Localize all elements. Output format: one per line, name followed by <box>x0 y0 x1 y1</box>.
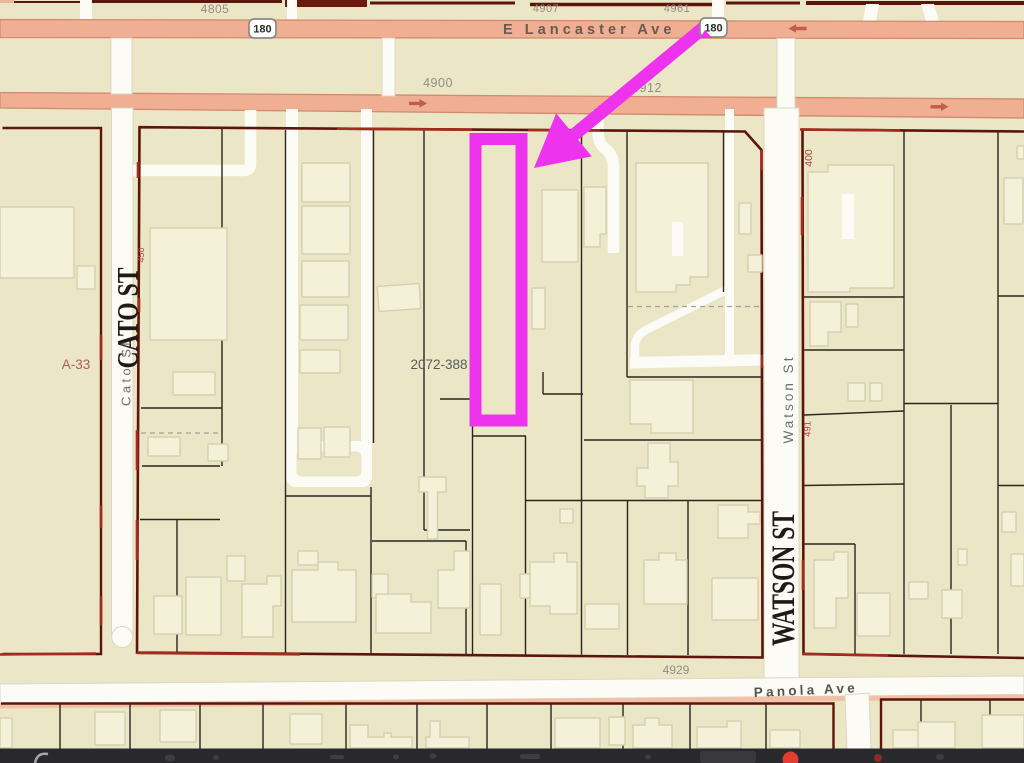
svg-text:491: 491 <box>803 421 814 437</box>
svg-text:450: 450 <box>136 247 146 262</box>
svg-text:4900: 4900 <box>423 76 453 90</box>
svg-text:2072-388: 2072-388 <box>410 357 467 372</box>
svg-text:400: 400 <box>803 149 815 167</box>
svg-text:E Lancaster Ave: E Lancaster Ave <box>503 22 674 38</box>
svg-text:4929: 4929 <box>663 663 690 677</box>
svg-text:4805: 4805 <box>201 2 230 16</box>
svg-text:180: 180 <box>253 24 271 36</box>
svg-text:4961: 4961 <box>664 3 690 15</box>
svg-text:WATSON ST: WATSON ST <box>766 511 802 646</box>
svg-text:4907: 4907 <box>533 3 559 15</box>
svg-text:A-33: A-33 <box>62 357 91 372</box>
